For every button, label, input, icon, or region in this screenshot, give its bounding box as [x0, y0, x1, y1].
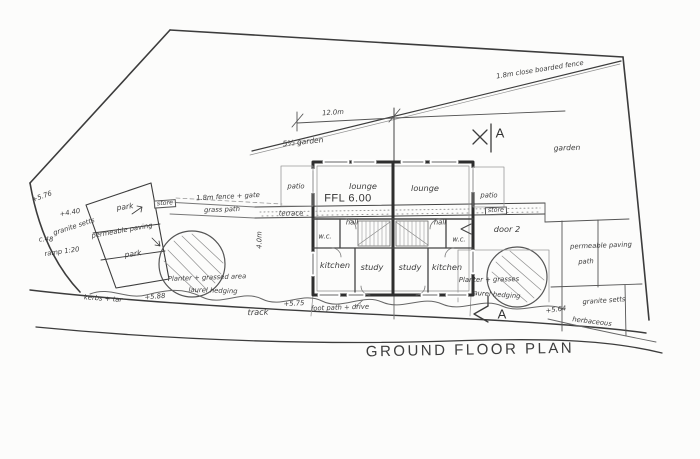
dimension-12m-label: 12.0m [322, 109, 344, 117]
patio-right-outline [473, 167, 504, 207]
planter-right-label: Planter + grasses [459, 276, 519, 284]
study-left-label: study [361, 263, 384, 271]
wc-right-label: w.c. [452, 237, 465, 244]
path-right-label: path [578, 258, 594, 266]
hall-right-label: hall [434, 220, 446, 227]
track-label: track [247, 308, 268, 317]
section-marker-bottom-icon [474, 296, 488, 322]
door-arrow-icon [461, 224, 471, 234]
store-left-label: store [154, 199, 177, 209]
wc-left-label: w.c. [318, 234, 331, 241]
building-walls [313, 162, 473, 295]
kitchen-left-label: kitchen [320, 261, 350, 269]
garden-right-label: garden [554, 144, 581, 152]
lounge-left-label: lounge [349, 182, 377, 190]
lounge-right-label: lounge [411, 184, 439, 192]
hall-left-label: hall [346, 220, 358, 227]
park-lower-label: park [124, 249, 142, 259]
grass-path-label: grass path [204, 206, 240, 214]
ffl-label: FFL 6.00 [324, 194, 372, 205]
patio-left-label: patio [287, 184, 304, 191]
floor-plan-sheet: 1.8m close boarded fence 12.0m 5½ garden… [0, 0, 700, 459]
kitchen-right-label: kitchen [432, 263, 462, 271]
level-575-label: +5.75 [283, 300, 304, 308]
park-upper-label: park [116, 202, 134, 212]
drawing-title: GROUND FLOOR PLAN [366, 341, 575, 360]
site-boundary [30, 30, 649, 320]
terrace-label: terrace [279, 211, 304, 218]
laurel-left-label: laurel hedging [188, 287, 237, 296]
store-right-label: store [485, 206, 507, 215]
door-note-label: door 2 [494, 225, 520, 233]
patio-right-label: patio [480, 193, 497, 200]
dimension-4m-label: 4.0m [257, 231, 264, 248]
section-marker-bottom-label: A [498, 308, 507, 321]
section-marker-top-label: A [496, 127, 505, 140]
section-marker-top-icon [473, 124, 491, 152]
study-right-label: study [399, 263, 422, 271]
c48-note-label: c.48 [39, 237, 54, 244]
